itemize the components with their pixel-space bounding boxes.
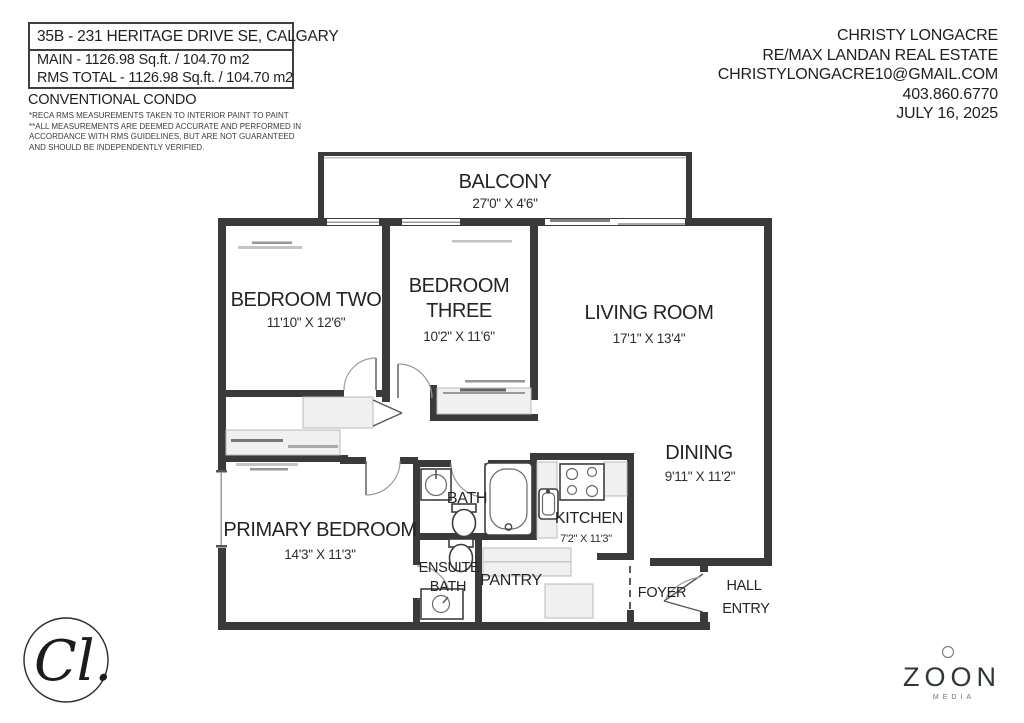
monogram-text: Cl. (34, 629, 112, 694)
agent-monogram-logo: Cl. (24, 618, 112, 702)
wall-segment (413, 460, 451, 467)
room-label: LIVING ROOM (585, 302, 714, 324)
room-dimension: 17'1" X 13'4" (613, 331, 686, 346)
wall-segment (530, 453, 634, 460)
wall-segment (597, 553, 634, 560)
wall-segment (376, 390, 390, 397)
room-label: THREE (426, 300, 492, 322)
room-dimension: 9'11" X 11'2" (665, 469, 736, 484)
wall-segment (627, 453, 634, 560)
wall-segment (218, 622, 710, 630)
aperture-icon (943, 647, 954, 658)
wall-segment (382, 226, 390, 402)
wall-segment (226, 390, 344, 397)
wall-segment (700, 558, 772, 566)
heater-line (250, 468, 288, 471)
heater-line (238, 246, 302, 249)
wall-segment (430, 414, 538, 421)
wall-segment (686, 152, 692, 218)
faucet-icon (546, 490, 550, 494)
room-dimension: 14'3" X 11'3" (284, 547, 356, 562)
room-dimension: 27'0" X 4'6" (472, 196, 538, 211)
door-arc (344, 358, 376, 390)
wall-segment (340, 457, 366, 464)
floor-plan-page: 35B - 231 HERITAGE DRIVE SE, CALGARY MAI… (0, 0, 1024, 723)
room-label: FOYER (638, 585, 686, 601)
room-dimension: 11'10" X 12'6" (267, 315, 346, 330)
wall-segment (627, 610, 634, 622)
room-label: BEDROOM (409, 275, 510, 297)
closet-slider (443, 392, 525, 394)
wall-segment (413, 598, 420, 624)
door-arc (398, 364, 432, 398)
bifold-door (373, 400, 402, 426)
entry-door-leaf (664, 601, 703, 612)
room-label: BEDROOM TWO (231, 289, 382, 311)
room-dimension: 10'2" X 11'6" (423, 329, 495, 344)
zoon-media-logo: ZOON MEDIA (903, 647, 1001, 702)
wall-segment (226, 455, 348, 462)
closets (226, 388, 531, 455)
kitchen-counter (604, 462, 627, 496)
wall-segment (318, 152, 324, 218)
closet-slider (460, 389, 506, 392)
zoon-logo-text: ZOON (903, 662, 1001, 692)
closet (226, 430, 340, 455)
room-label: ENSUITE (419, 560, 480, 576)
heater-line (236, 463, 298, 466)
heater-line (452, 240, 512, 243)
wall-segment (318, 152, 692, 156)
window-glass-line (221, 472, 223, 545)
window-glass-line (402, 222, 460, 224)
floor-plan-drawing: BALCONY 27'0" X 4'6" BEDROOM TWO 11'10" … (0, 0, 1024, 723)
stove-icon (560, 464, 604, 500)
room-dimension: 7'2" X 11'3" (560, 533, 612, 545)
sliding-panel (618, 223, 685, 225)
wall-segment (700, 612, 708, 630)
closet (303, 397, 373, 428)
room-label: BALCONY (459, 171, 552, 193)
pantry-shelf-line (483, 561, 571, 563)
wall-segment (218, 218, 772, 226)
zoon-logo-sub: MEDIA (933, 694, 975, 701)
room-label: BATH (447, 490, 487, 507)
wall-segment (218, 218, 226, 630)
wall-segment (530, 226, 538, 400)
room-label: KITCHEN (555, 510, 623, 527)
wall-segment (764, 218, 772, 566)
room-label: BATH (430, 579, 466, 595)
room-label: PANTRY (480, 572, 542, 589)
closet-slider (288, 445, 338, 448)
railing-line (318, 157, 692, 159)
window-glass-line (327, 222, 379, 224)
door-arc (366, 461, 400, 495)
pantry-counter (545, 584, 593, 618)
room-label: HALL (726, 578, 761, 594)
sliding-panel (550, 219, 610, 222)
heater-line (252, 242, 292, 245)
toilet-icon (453, 510, 476, 537)
closet-slider (231, 439, 283, 442)
closet (437, 388, 531, 414)
wall-segment (650, 558, 704, 566)
room-label: PRIMARY BEDROOM (223, 519, 416, 541)
window-frame (216, 545, 227, 548)
heater-line (465, 380, 525, 383)
room-label: DINING (665, 442, 733, 464)
room-label: ENTRY (722, 601, 770, 617)
